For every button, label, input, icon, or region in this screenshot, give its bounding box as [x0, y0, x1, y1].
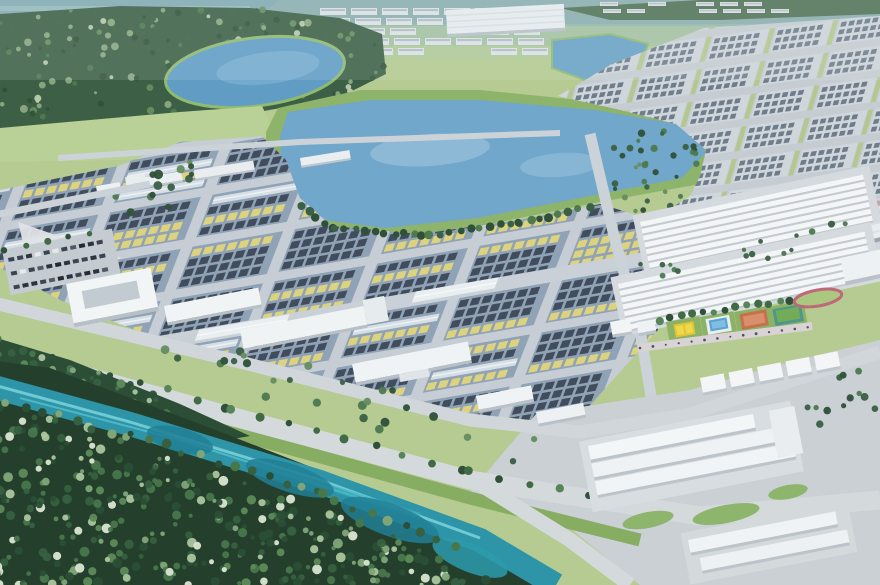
tree [136, 475, 142, 481]
tree [86, 450, 93, 457]
tree [451, 542, 460, 551]
tree [318, 488, 328, 498]
tree [32, 415, 38, 421]
tree [346, 552, 355, 561]
tree [1, 399, 9, 407]
tree [44, 238, 51, 245]
tree [46, 107, 49, 110]
tree [188, 163, 194, 169]
tree [286, 420, 292, 426]
tree [268, 513, 275, 520]
tree [154, 181, 163, 190]
tree [226, 405, 235, 414]
tree [781, 329, 783, 331]
tree [683, 144, 689, 150]
tree [660, 262, 666, 268]
tree [287, 377, 293, 383]
tree [652, 345, 655, 348]
tree [313, 537, 317, 541]
tree [89, 458, 94, 463]
tree [62, 494, 72, 504]
tree [248, 466, 257, 475]
tree [731, 303, 739, 311]
tree [742, 248, 746, 252]
tree [66, 522, 72, 528]
tree [313, 427, 320, 434]
tree [5, 432, 14, 441]
aerial-campus-rendering [0, 0, 880, 585]
tree [809, 228, 816, 235]
tree [167, 183, 175, 191]
tree [328, 564, 337, 573]
tree [634, 165, 638, 169]
tree [172, 511, 181, 520]
tree [110, 521, 118, 529]
tree [59, 576, 64, 581]
tree [261, 541, 265, 545]
tree [15, 547, 23, 555]
tree [303, 527, 309, 533]
tree [311, 213, 319, 221]
tree [41, 491, 46, 496]
tree [361, 227, 369, 235]
tree [110, 539, 118, 547]
tree [639, 347, 642, 350]
tree [816, 420, 823, 427]
tree [391, 534, 395, 538]
tree [544, 213, 553, 222]
tree [497, 220, 505, 228]
tree [855, 368, 862, 375]
tree [429, 412, 438, 421]
tree [113, 558, 123, 568]
tree [222, 567, 227, 572]
tree [19, 347, 27, 355]
tree [41, 432, 48, 439]
tree [277, 549, 285, 557]
tree [359, 414, 367, 422]
tree [417, 231, 425, 239]
tree [38, 354, 45, 361]
tree [446, 229, 453, 236]
tree [464, 434, 471, 441]
tree [258, 515, 266, 523]
tree [464, 466, 473, 475]
tree [437, 232, 444, 239]
tree [209, 559, 214, 564]
tree [346, 84, 352, 90]
tree [32, 427, 37, 432]
tree [665, 344, 667, 346]
tree [309, 531, 314, 536]
tree [142, 537, 149, 544]
tree [206, 493, 214, 501]
tree [516, 220, 523, 227]
tree [554, 210, 561, 217]
tree [813, 405, 818, 410]
tree [22, 403, 31, 412]
tree [259, 563, 268, 572]
tree [758, 239, 763, 244]
tree [277, 511, 287, 521]
tree [206, 473, 213, 480]
tree [241, 507, 248, 514]
tree [150, 537, 157, 544]
tree [6, 511, 15, 520]
tree [711, 309, 717, 315]
tree [342, 530, 349, 537]
tree [352, 561, 356, 565]
tree [2, 88, 7, 93]
tree [742, 334, 745, 337]
tree [139, 543, 147, 551]
tree [123, 574, 131, 582]
tree [651, 145, 658, 152]
tree [46, 416, 53, 423]
tree [633, 209, 637, 213]
tree [424, 231, 433, 240]
tree [214, 511, 222, 519]
tree [93, 499, 101, 507]
tree [286, 566, 293, 573]
tree [231, 358, 237, 364]
tree [843, 221, 848, 226]
tree [132, 562, 141, 571]
tree [96, 525, 102, 531]
tree [118, 518, 124, 524]
tree [331, 225, 338, 232]
tree [642, 179, 648, 185]
tree [178, 451, 184, 457]
tree [341, 564, 346, 569]
tree [76, 473, 84, 481]
tree [372, 556, 378, 562]
tree [96, 444, 105, 453]
tree [37, 103, 42, 108]
tree [353, 226, 359, 232]
tree [375, 425, 384, 434]
tree [526, 481, 533, 488]
tree [149, 192, 155, 198]
tree [340, 225, 347, 232]
tree [314, 578, 319, 583]
tree [197, 450, 205, 458]
tree [107, 429, 116, 438]
tree [140, 498, 147, 505]
tree [693, 161, 699, 167]
tree [401, 546, 406, 551]
tree [19, 418, 26, 425]
tree [231, 542, 238, 549]
tree [233, 525, 239, 531]
tree [65, 234, 71, 240]
tree [85, 497, 94, 506]
tree [276, 502, 284, 510]
tree [372, 228, 380, 236]
tree [399, 569, 405, 575]
tree [794, 328, 797, 331]
tree [133, 493, 141, 501]
tree [403, 522, 410, 529]
tree [857, 391, 862, 396]
tree [147, 398, 152, 403]
tree [262, 393, 270, 401]
tree [19, 446, 25, 452]
tree [21, 429, 26, 434]
tree [124, 463, 134, 473]
tree [152, 478, 157, 483]
tree [785, 297, 793, 305]
tree [781, 251, 786, 256]
tree [113, 494, 117, 498]
tree [644, 184, 649, 189]
tree [130, 386, 134, 390]
tree [64, 441, 69, 446]
tree [53, 552, 61, 560]
tree [145, 480, 153, 488]
tree [383, 516, 393, 526]
tree [823, 407, 831, 415]
tree [364, 398, 372, 406]
tree [312, 564, 322, 574]
tree [96, 486, 104, 494]
tree [54, 560, 61, 567]
tree [160, 532, 165, 537]
tree [306, 565, 310, 569]
tree [166, 478, 170, 482]
tree [94, 91, 97, 94]
tree [703, 339, 706, 342]
tree [238, 528, 247, 537]
tree [258, 499, 265, 506]
tree [128, 431, 134, 437]
tree [46, 460, 52, 466]
tree [678, 194, 683, 199]
tree [691, 341, 693, 343]
tree [805, 404, 811, 410]
tree [340, 380, 345, 385]
tree [274, 540, 279, 545]
tree [536, 216, 543, 223]
tree [182, 565, 187, 570]
tree [185, 531, 192, 538]
tree [385, 572, 391, 578]
tree [840, 372, 847, 379]
tree [765, 255, 771, 261]
tree [241, 353, 247, 359]
tree [27, 98, 32, 103]
tree [219, 476, 229, 486]
tree [212, 471, 219, 478]
tree [586, 203, 594, 211]
tree [222, 551, 229, 558]
tree [96, 370, 100, 374]
tree [847, 394, 854, 401]
tree [304, 362, 312, 370]
tree [638, 148, 644, 154]
tree [139, 483, 144, 488]
tree [622, 194, 628, 200]
tree [349, 526, 353, 530]
tree [238, 549, 246, 557]
tree [872, 405, 879, 412]
tree [23, 243, 29, 249]
tree [164, 101, 171, 108]
tree [66, 572, 74, 580]
tree [162, 439, 172, 449]
tree [80, 469, 84, 473]
tree [177, 165, 185, 173]
tree [216, 499, 222, 505]
tree [486, 222, 495, 231]
tree [270, 378, 276, 384]
tree [370, 577, 376, 583]
tree [40, 570, 46, 576]
tree [105, 557, 110, 562]
tree [122, 554, 128, 560]
tree [2, 446, 9, 453]
tree [191, 483, 195, 487]
tree [26, 571, 31, 576]
tree [59, 540, 65, 546]
tree [119, 498, 126, 505]
tree [678, 342, 680, 344]
tree [432, 536, 440, 544]
tree [45, 115, 50, 120]
tree [765, 301, 772, 308]
tree [39, 82, 46, 89]
tree [85, 485, 92, 492]
tree [327, 576, 335, 584]
tree [313, 399, 321, 407]
tree [364, 560, 370, 566]
tree [215, 461, 222, 468]
tree [413, 554, 423, 564]
tree [38, 408, 47, 417]
tree [193, 542, 201, 550]
tree [173, 522, 178, 527]
tree [349, 506, 355, 512]
tree [435, 555, 443, 563]
tree [668, 263, 672, 267]
tree [145, 435, 153, 443]
tree [675, 175, 679, 179]
tree [36, 458, 43, 465]
tree [256, 413, 265, 422]
tree [98, 101, 104, 107]
tree [50, 496, 56, 502]
tree [127, 208, 135, 216]
tree [743, 253, 749, 259]
tree [340, 434, 349, 443]
tree [459, 579, 466, 585]
tree [70, 367, 76, 373]
tree [287, 526, 296, 535]
tree [36, 466, 42, 472]
tree [432, 576, 441, 585]
tree [90, 376, 94, 380]
tree [368, 509, 376, 517]
tree [656, 317, 664, 325]
tree [6, 555, 11, 560]
tree [400, 229, 407, 236]
tree [29, 523, 35, 529]
tree [627, 145, 634, 152]
tree [29, 351, 35, 357]
tree [417, 548, 421, 552]
tree [116, 455, 121, 460]
tree [660, 273, 666, 279]
tree [678, 311, 686, 319]
tree [3, 472, 13, 482]
tree [531, 436, 537, 442]
tree [73, 416, 82, 425]
tree [510, 458, 516, 464]
tree [612, 180, 619, 187]
tree [99, 539, 104, 544]
tree [611, 145, 617, 151]
tree [87, 231, 92, 236]
tree [381, 556, 388, 563]
tree [139, 554, 144, 559]
tree [722, 307, 729, 314]
tree [123, 491, 128, 496]
tree [754, 300, 762, 308]
tree [8, 349, 16, 357]
tree [88, 567, 96, 575]
tree [442, 573, 450, 581]
tree [391, 546, 397, 552]
tree [670, 152, 676, 158]
tree [700, 309, 706, 315]
tree [72, 81, 77, 86]
tree [660, 131, 664, 135]
tree [768, 331, 770, 333]
tree [91, 537, 97, 543]
tree [399, 452, 406, 459]
tree [153, 397, 158, 402]
tree [259, 549, 265, 555]
tree [278, 519, 286, 527]
tree [51, 455, 55, 459]
tree [348, 79, 353, 84]
tree [220, 357, 228, 365]
tree [27, 505, 34, 512]
tree [282, 576, 289, 583]
tree [476, 225, 483, 232]
tree [637, 163, 641, 167]
tree [153, 565, 158, 570]
tree [54, 517, 59, 522]
tree [841, 403, 846, 408]
tree [794, 233, 798, 237]
tree [620, 153, 626, 159]
tree [147, 107, 154, 114]
tree [187, 554, 196, 563]
tree [288, 514, 294, 520]
tree [43, 553, 52, 562]
tree [20, 105, 28, 113]
tree [348, 531, 357, 540]
tree [174, 355, 181, 362]
tree [379, 387, 387, 395]
tree [74, 558, 78, 562]
scene-canvas [0, 0, 880, 585]
tree [157, 457, 161, 461]
tree [642, 161, 649, 168]
tree [789, 248, 793, 252]
tree [266, 472, 274, 480]
